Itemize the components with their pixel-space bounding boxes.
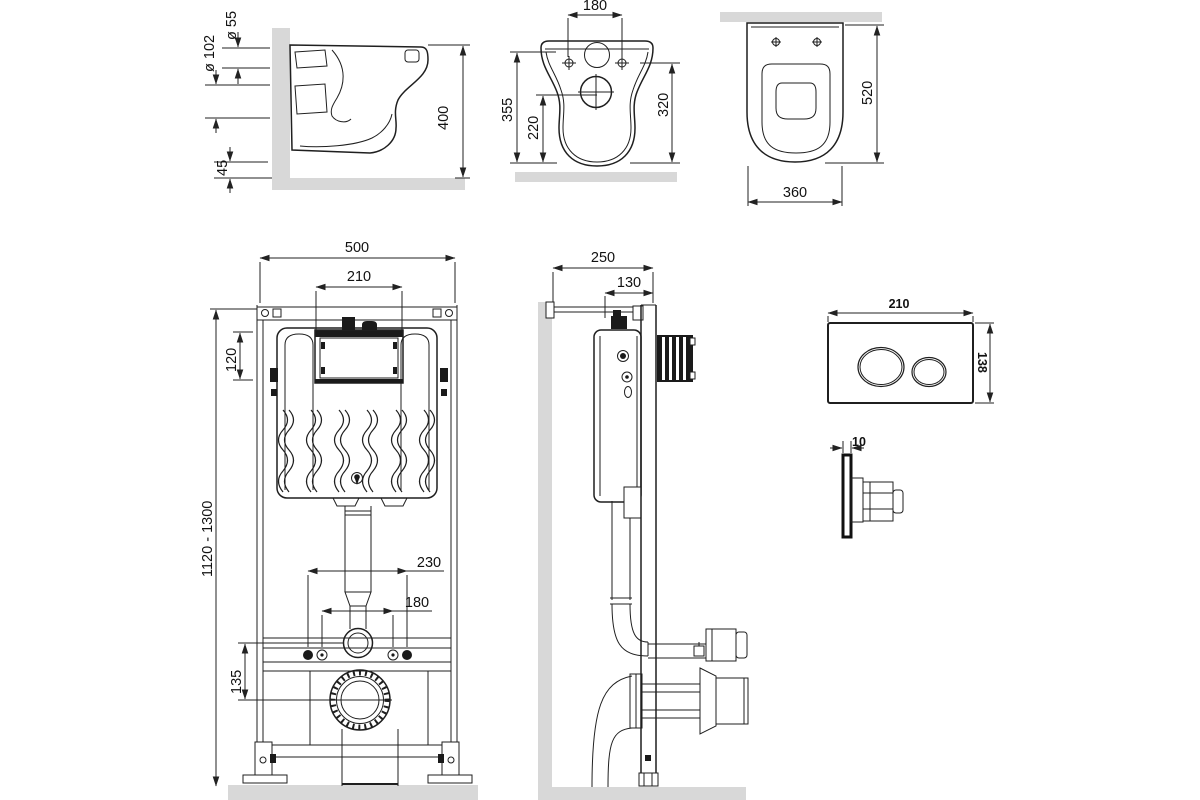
trap-curve xyxy=(331,50,351,122)
dim-label-bolt-spacing: 180 xyxy=(583,0,607,14)
dim-label-width: 360 xyxy=(783,185,807,201)
frame-front-view: 500 210 120 1120 - 1300 230 180 135 xyxy=(200,240,478,800)
seat-ring-outline xyxy=(762,64,830,153)
dim-label-stud-spacing-outer: 230 xyxy=(417,555,441,571)
toilet-side-view: ø 55 ø 102 45 400 xyxy=(202,11,470,193)
floor-section xyxy=(538,787,746,800)
bowl-inner-curve xyxy=(300,114,392,147)
mounting-studs xyxy=(303,650,412,660)
dim-label-plate-width: 210 xyxy=(889,297,910,311)
flush-button-small xyxy=(912,358,946,387)
floor-strip xyxy=(228,785,478,800)
wall-section xyxy=(272,28,290,178)
dim-label-depth: 520 xyxy=(860,81,876,105)
frame-side-view: 250 130 xyxy=(538,250,748,800)
cistern-keyhole xyxy=(352,473,363,486)
access-panel xyxy=(624,487,641,518)
seat-fixing-hole xyxy=(405,50,419,62)
bowl-opening-outline xyxy=(776,83,816,119)
dim-label-depth-total: 250 xyxy=(591,250,615,266)
dim-label-bolt-height: 320 xyxy=(656,93,672,117)
floor-strip xyxy=(515,172,677,182)
inlet-port xyxy=(295,50,327,68)
dim-label-height-total: 355 xyxy=(500,98,516,122)
dim-label-window-height: 120 xyxy=(224,348,240,372)
fixing-hole-right xyxy=(615,56,629,70)
hinge-hole-right xyxy=(812,37,822,47)
fixing-hole-left xyxy=(562,56,576,70)
flush-plate-side-view: 10 xyxy=(830,435,903,537)
cistern-molding-left xyxy=(285,334,313,490)
dim-label-outlet-diameter: ø 102 xyxy=(202,35,218,72)
flush-plate-outline xyxy=(828,323,973,403)
technical-drawing: ø 55 ø 102 45 400 xyxy=(0,0,1200,800)
frame-legs xyxy=(243,742,472,783)
dim-label-rim-to-floor: 45 xyxy=(215,160,231,176)
outlet-circle xyxy=(578,74,614,110)
toilet-back-outline xyxy=(541,41,653,166)
dim-label-stud-spacing-inner: 180 xyxy=(405,595,429,611)
hinge-hole-left xyxy=(771,37,781,47)
flush-bend-socket xyxy=(344,629,373,658)
corrugated-sleeve xyxy=(657,335,695,382)
drawing-canvas: ø 55 ø 102 45 400 xyxy=(0,0,1200,800)
flush-plate-front-view: 210 138 xyxy=(828,297,994,403)
dim-label-plate-height: 138 xyxy=(975,352,989,373)
wall-bracket-rod xyxy=(546,302,643,320)
outlet-port xyxy=(295,84,327,114)
dim-label-height: 400 xyxy=(436,106,452,130)
fill-valve-cap xyxy=(342,317,355,330)
plate-side-profile xyxy=(843,455,851,537)
plate-rear-assembly xyxy=(851,478,903,522)
dim-label-plate-thickness: 10 xyxy=(852,435,866,449)
flush-button-large xyxy=(858,348,904,387)
wall-section xyxy=(538,302,552,788)
dim-label-flush-to-outlet: 135 xyxy=(229,670,245,694)
dim-label-window-width: 210 xyxy=(347,269,371,285)
flush-pipe-side xyxy=(610,501,747,661)
inlet-fitting xyxy=(611,316,627,329)
toilet-top-outline xyxy=(747,23,843,162)
dim-label-height-range: 1120 - 1300 xyxy=(200,501,216,577)
toilet-bowl-profile xyxy=(290,45,428,153)
dim-label-depth-frame: 130 xyxy=(617,275,641,291)
top-crossbar xyxy=(257,307,457,320)
outlet-connector-side xyxy=(592,668,748,787)
floor-section xyxy=(272,178,465,190)
toilet-back-view: 180 355 220 320 xyxy=(500,0,680,182)
water-inlet-circle xyxy=(585,43,610,68)
toilet-top-view: 520 360 xyxy=(720,12,884,206)
wall-strip xyxy=(720,12,882,22)
dim-label-outlet-height: 220 xyxy=(526,116,542,140)
dim-label-frame-width: 500 xyxy=(345,240,369,256)
inlet-connector xyxy=(362,321,377,330)
dim-label-inlet-diameter: ø 55 xyxy=(224,11,240,40)
